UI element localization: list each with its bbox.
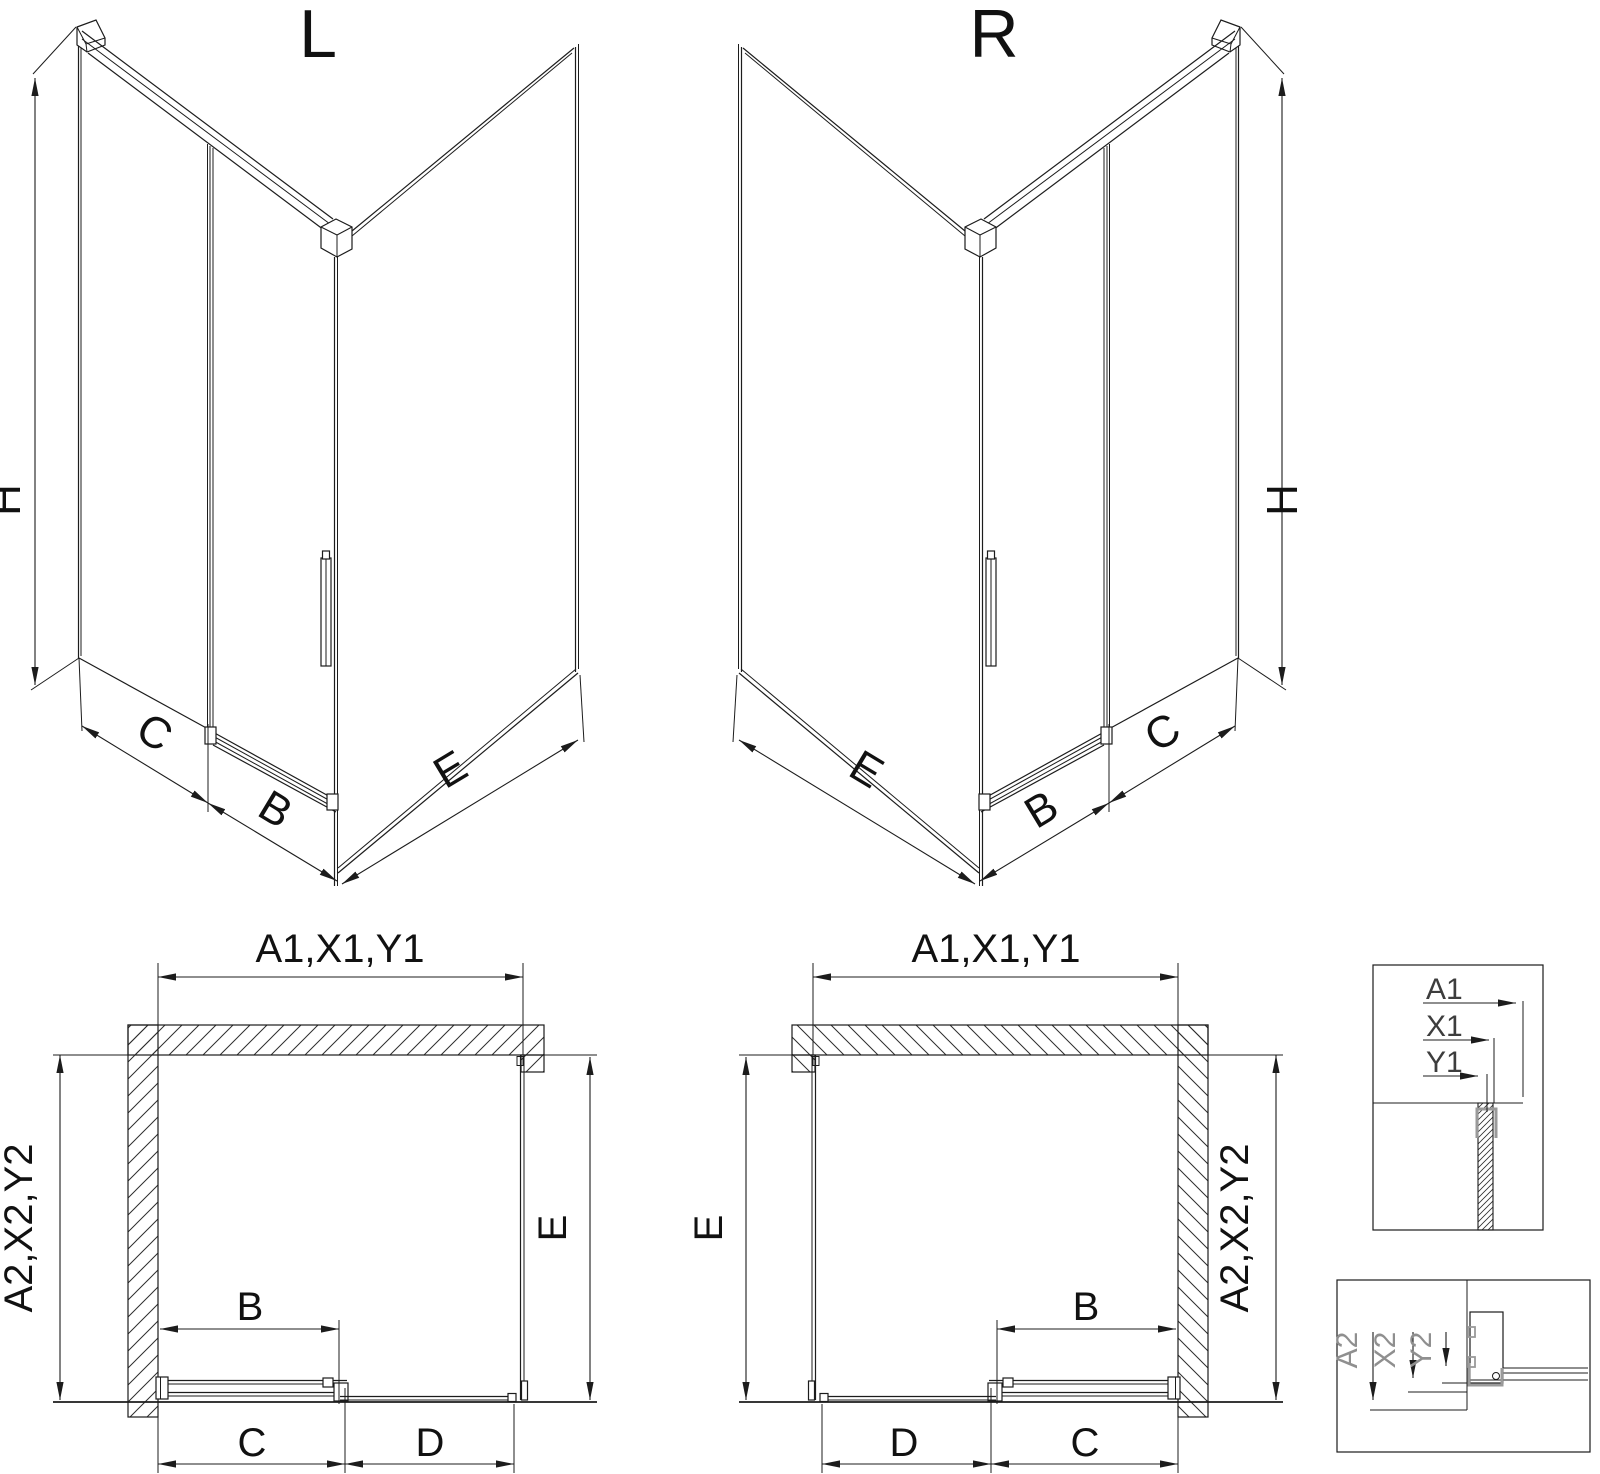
plan-left-dim-B: B [237, 1285, 264, 1329]
plan-right-dim-B: B [1073, 1285, 1100, 1329]
plan-right-dim-E: E [687, 1215, 731, 1242]
iso-right-dim-E: E [841, 741, 891, 798]
plan-view-left-geometry [53, 963, 597, 1473]
iso-left-dim-B: B [250, 781, 300, 838]
plan-left-dim-C: C [238, 1421, 267, 1465]
plan-view-right: A1,X1,Y1 E A2,X2,Y2 B D C [687, 927, 1283, 1473]
iso-view-right-geometry [733, 20, 1286, 886]
iso-right-dim-B: B [1016, 781, 1066, 838]
detail-top-label-A1: A1 [1426, 973, 1463, 1006]
plan-view-right-geometry [739, 963, 1283, 1473]
iso-right-dim-C: C [1136, 703, 1188, 761]
iso-view-right: R H C B E [733, 0, 1307, 886]
detail-bottom-section: A2 X2 Y2 [1331, 1280, 1590, 1452]
shower-enclosure-diagram: L H C B E R H C B E A1,X1,Y1 A2,X2,Y2 E … [0, 0, 1600, 1474]
plan-right-dim-D: D [890, 1421, 919, 1465]
detail-top-glass-panel [1478, 1103, 1493, 1230]
iso-view-left: L H C B E [0, 0, 584, 886]
plan-right-dim-C: C [1071, 1421, 1100, 1465]
plan-left-dim-E: E [531, 1215, 575, 1242]
plan-left-dim-side: A2,X2,Y2 [0, 1143, 41, 1312]
detail-bottom-label-X2: X2 [1369, 1332, 1402, 1369]
detail-bottom-door-profile [1470, 1312, 1503, 1383]
iso-left-title: L [299, 0, 337, 72]
iso-right-dim-H: H [1258, 484, 1307, 516]
detail-top-label-Y1: Y1 [1426, 1046, 1463, 1079]
iso-left-dim-H: H [0, 484, 30, 516]
plan-right-dim-side: A2,X2,Y2 [1213, 1143, 1257, 1312]
detail-bottom-label-Y2: Y2 [1405, 1332, 1438, 1369]
detail-top-label-X1: X1 [1426, 1010, 1463, 1043]
plan-right-dim-top: A1,X1,Y1 [911, 927, 1080, 971]
detail-bottom-label-A2: A2 [1331, 1332, 1364, 1369]
detail-top-section: A1 X1 Y1 [1373, 965, 1543, 1230]
plan-left-dim-top: A1,X1,Y1 [255, 927, 424, 971]
technical-drawing-page: L H C B E R H C B E A1,X1,Y1 A2,X2,Y2 E … [0, 0, 1600, 1474]
iso-left-dim-E: E [425, 741, 475, 798]
plan-view-left: A1,X1,Y1 A2,X2,Y2 E B C D [0, 927, 597, 1473]
iso-right-title: R [969, 0, 1018, 72]
iso-view-left-geometry [31, 20, 584, 886]
plan-left-dim-D: D [416, 1421, 445, 1465]
iso-left-dim-C: C [128, 703, 180, 761]
